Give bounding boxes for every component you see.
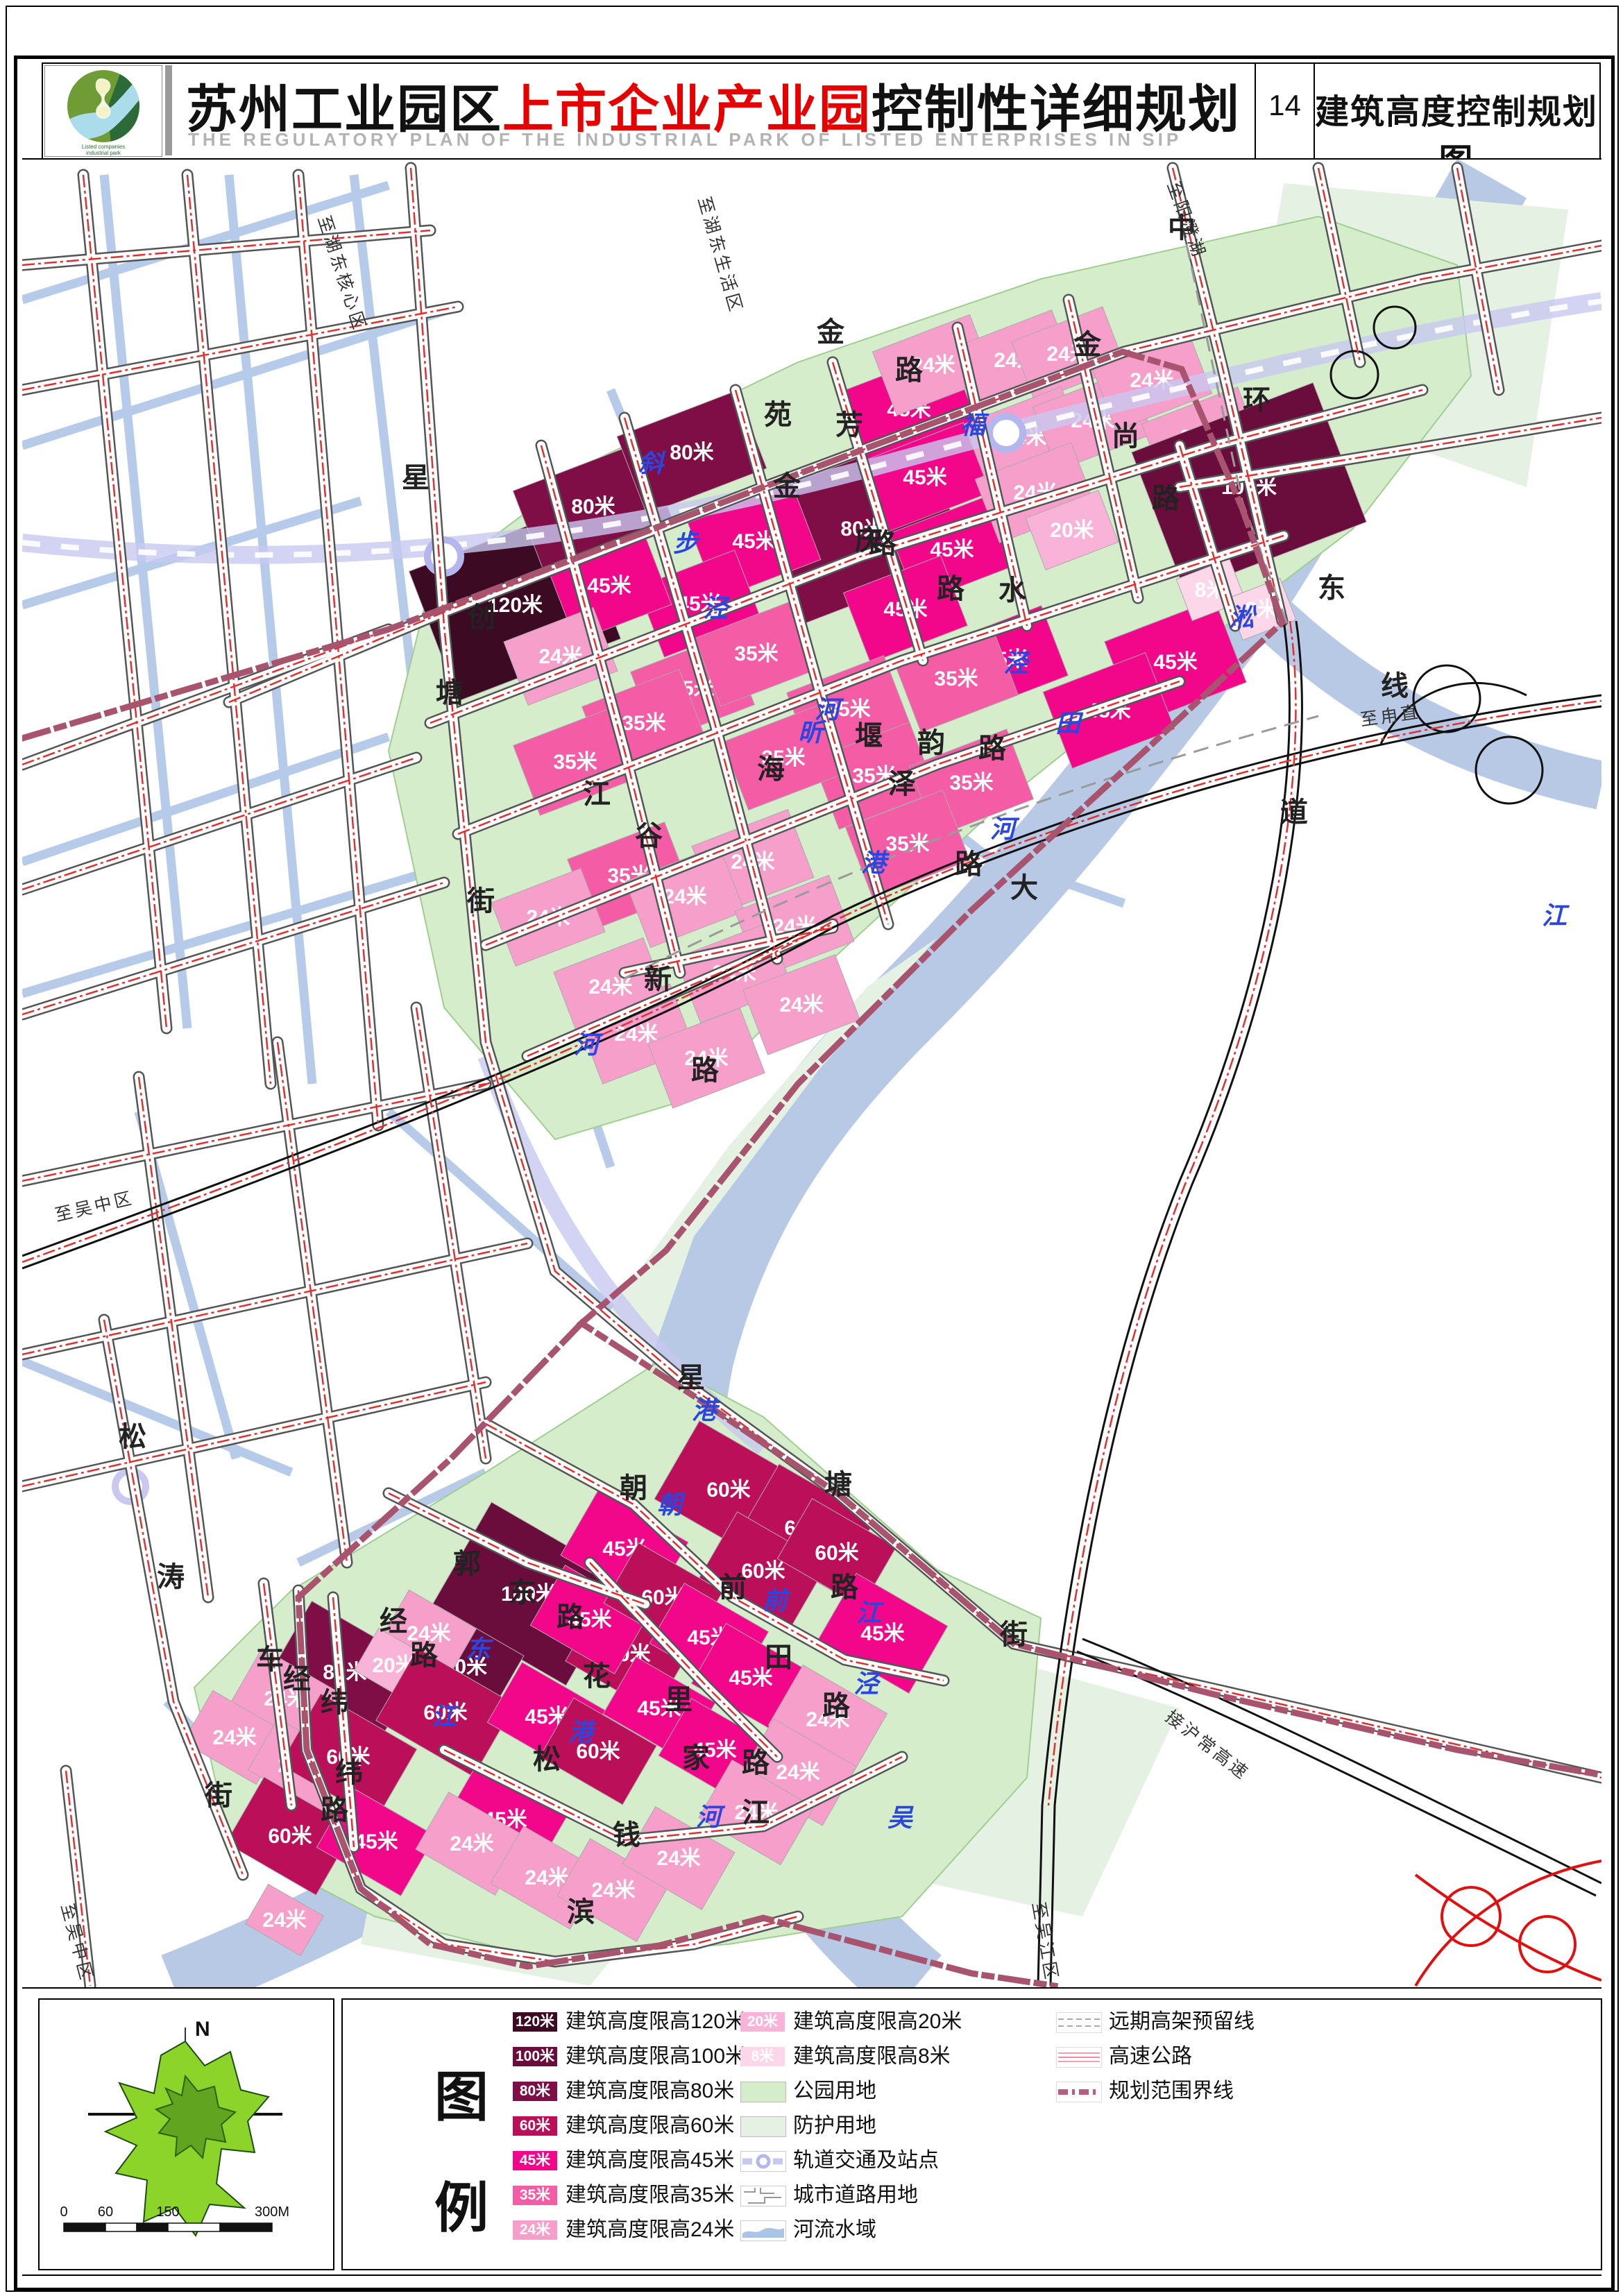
- road-name-char: 路: [955, 849, 983, 880]
- direction-label: 接沪常高速: [1162, 1707, 1253, 1784]
- road-name-char: 路: [822, 1691, 851, 1721]
- road-name-char: 经: [380, 1606, 407, 1637]
- legend-swatch: 100米: [513, 2047, 557, 2066]
- river-name-char: 步: [673, 529, 701, 557]
- legend-label: 防护用地: [793, 2116, 876, 2136]
- legend-item: 河流水域: [740, 2220, 1060, 2244]
- road-name-char: 尚: [1112, 421, 1139, 452]
- scalebar-tick: 150: [156, 2204, 179, 2220]
- legend-label: 远期高架预留线: [1109, 2012, 1255, 2032]
- legend-swatch: 24米: [513, 2220, 557, 2240]
- road-name-char: 路: [831, 1572, 859, 1603]
- legend-item: 8米建筑高度限高8米: [740, 2047, 1060, 2070]
- river-name-char: 泾: [703, 594, 731, 622]
- road-name-char: 星: [402, 463, 430, 493]
- legend-label: 建筑高度限高80米: [566, 2082, 734, 2101]
- road-name-char: 东: [1318, 573, 1345, 604]
- road-name-char: 路: [742, 1748, 770, 1778]
- road-name-char: 松: [533, 1744, 561, 1775]
- road-name-char: 庆: [855, 525, 883, 556]
- legend-label: 建筑高度限高100米: [566, 2047, 746, 2066]
- road-name-char: 星: [677, 1363, 705, 1393]
- direction-label: 至湖东生活区: [694, 194, 746, 316]
- legend-swatch: 20米: [740, 2012, 785, 2032]
- logo-caption-1: Listed companies: [82, 144, 125, 150]
- legend-label: 城市道路用地: [793, 2186, 918, 2205]
- legend-swatch: [740, 2082, 786, 2102]
- river-name-char: 朝: [657, 1490, 686, 1519]
- height-label: 24米: [776, 1761, 819, 1784]
- scalebar-tick: 60: [98, 2204, 113, 2220]
- road-name-char: 塘: [824, 1470, 852, 1500]
- legend-item: 高速公路: [1056, 2047, 1375, 2070]
- header-separator: [165, 65, 172, 155]
- legend-symbol-road: [740, 2186, 786, 2206]
- road-name-char: 朝: [620, 1473, 647, 1504]
- road-name-char: 谷: [635, 821, 663, 851]
- legend: 图 例 120米建筑高度限高120米100米建筑高度限高100米80米建筑高度限…: [341, 1998, 1602, 2270]
- logo-caption-2: industrial park: [86, 150, 121, 156]
- height-label: 35米: [734, 643, 778, 665]
- river-name-char: 昕: [798, 718, 827, 747]
- legend-item: 远期高架预留线: [1056, 2012, 1375, 2036]
- legend-item: 防护用地: [740, 2116, 1060, 2140]
- road-name-char: 路: [1152, 484, 1180, 514]
- road-name-char: 路: [410, 1640, 439, 1671]
- legend-label: 建筑高度限高8米: [793, 2047, 951, 2066]
- legend-symbol-water: [740, 2220, 786, 2241]
- height-label: 24米: [212, 1726, 256, 1749]
- legend-label: 高速公路: [1109, 2047, 1192, 2066]
- river-name-char: 港: [692, 1396, 720, 1425]
- road-name-char: 韵: [917, 728, 945, 758]
- road-name-char: 街: [204, 1780, 232, 1811]
- road-name-char: 路: [937, 574, 965, 604]
- river-name-char: 田: [1055, 709, 1084, 738]
- compass-box: N 060150300M: [38, 1998, 334, 2270]
- river-name-char: 江: [856, 1599, 884, 1627]
- scalebar-tick: 0: [60, 2204, 67, 2220]
- legend-symbol-expressway: [1056, 2047, 1102, 2068]
- road-name-char: 道: [1280, 797, 1308, 828]
- legend-item: 轨道交通及站点: [740, 2151, 1060, 2175]
- road-name-char: 街: [466, 886, 495, 917]
- height-label: 80米: [670, 441, 713, 464]
- legend-symbol-rail: [740, 2151, 786, 2172]
- logo-image: Listed companies industrial park: [45, 66, 162, 156]
- height-label: 60米: [815, 1542, 858, 1565]
- river-name-char: 泾: [853, 1669, 881, 1698]
- scalebar-tick: 300M: [255, 2204, 289, 2220]
- road-name-char: 江: [742, 1798, 770, 1828]
- height-label: 24米: [656, 1847, 700, 1870]
- river-name-char: 港: [568, 1718, 597, 1746]
- road-name-char: 松: [119, 1422, 146, 1452]
- road-name-char: 里: [665, 1685, 692, 1715]
- legend-symbol-boundary: [1056, 2082, 1102, 2102]
- bottom-rule: [22, 2274, 1601, 2276]
- legend-swatch: 80米: [513, 2082, 557, 2101]
- road-name-char: 芳: [835, 410, 863, 441]
- road-name-char: 钱: [613, 1820, 640, 1851]
- road-name-char: 家: [682, 1743, 710, 1774]
- height-label: 24米: [262, 1909, 306, 1932]
- road-name-char: 金: [772, 470, 801, 502]
- legend-item: 城市道路用地: [740, 2186, 1060, 2209]
- legend-swatch: [740, 2116, 786, 2137]
- road-name-char: 创: [468, 602, 495, 633]
- road-name-char: 塘: [436, 678, 464, 708]
- legend-title-char-2: 例: [430, 2165, 493, 2243]
- legend-label: 建筑高度限高120米: [566, 2012, 746, 2032]
- height-label: 60米: [741, 1560, 785, 1583]
- north-label: N: [195, 2018, 210, 2041]
- road-name-char: 金: [1073, 329, 1102, 360]
- road-name-char: 江: [583, 779, 611, 810]
- river-name-char: 江: [1542, 901, 1570, 930]
- legend-item: 公园用地: [740, 2082, 1060, 2105]
- height-label: 24米: [591, 1879, 635, 1902]
- river-name-char: 吴: [887, 1803, 914, 1832]
- height-label: 45米: [903, 466, 946, 489]
- road-name-char: 车: [256, 1644, 284, 1675]
- road-name-char: 堰: [855, 721, 883, 751]
- height-label: 35米: [949, 772, 993, 794]
- river-name-char: 福: [960, 411, 989, 439]
- legend-swatch: 45米: [513, 2151, 557, 2170]
- height-label: 24米: [663, 885, 706, 908]
- legend-title-char-1: 图: [430, 2054, 493, 2132]
- river-name-char: 江: [432, 1702, 459, 1730]
- river-name-char: 东: [466, 1635, 494, 1663]
- legend-label: 建筑高度限高45米: [566, 2151, 734, 2170]
- road-name-char: 前: [719, 1572, 747, 1603]
- height-label: 45米: [1153, 651, 1197, 674]
- legend-symbol-elevated: [1056, 2012, 1102, 2033]
- road-name-char: 经: [283, 1664, 311, 1694]
- river-name-char: 前: [763, 1586, 791, 1615]
- compass-rose: N 060150300M: [40, 2000, 333, 2269]
- river-name-char: 港: [861, 849, 890, 877]
- road-name-char: 街: [999, 1619, 1028, 1650]
- height-label: 80米: [571, 495, 615, 518]
- legend-label: 建筑高度限高24米: [566, 2220, 734, 2240]
- road-name-char: 大: [1010, 873, 1038, 903]
- road-name-char: 路: [321, 1795, 349, 1826]
- height-label: 35米: [553, 751, 597, 774]
- legend-swatch: 60米: [513, 2116, 557, 2136]
- river-name-char: 斜: [638, 449, 666, 477]
- river-name-char: 泾: [1003, 649, 1031, 677]
- logo: Listed companies industrial park: [44, 65, 162, 157]
- legend-swatch: 120米: [513, 2012, 557, 2032]
- red-interchange-icon: [1416, 1861, 1601, 1986]
- road-name-char: 新: [644, 964, 672, 995]
- page-subtitle-en: THE REGULATORY PLAN OF THE INDUSTRIAL PA…: [188, 129, 1182, 151]
- height-control-map: 120米80米80米80米45米45米45米45米45米45米45米45米45米…: [22, 160, 1601, 1987]
- road-name-char: 纬: [321, 1687, 348, 1718]
- legend-swatch: 8米: [740, 2047, 785, 2066]
- metro-station-icon: [989, 416, 1023, 450]
- scale-bar: 060150300M: [60, 2204, 289, 2231]
- legend-label: 河流水域: [793, 2220, 876, 2240]
- height-label: 24米: [779, 994, 823, 1017]
- legend-label: 轨道交通及站点: [793, 2151, 939, 2170]
- road-name-char: 东: [509, 1578, 536, 1608]
- height-label: 35米: [934, 667, 978, 690]
- height-label: 24米: [450, 1832, 493, 1855]
- legend-label: 规划范围界线: [1109, 2082, 1234, 2101]
- road-name-char: 涛: [157, 1562, 185, 1592]
- road-name-char: 路: [556, 1602, 585, 1633]
- height-label: 45米: [354, 1830, 398, 1853]
- height-label: 60米: [268, 1825, 312, 1848]
- road-name-char: 花: [583, 1661, 611, 1692]
- road-name-char: 郭: [453, 1549, 481, 1579]
- road-name-char: 水: [999, 575, 1027, 606]
- legend-label: 建筑高度限高20米: [793, 2012, 962, 2032]
- legend-item: 规划范围界线: [1056, 2082, 1375, 2105]
- height-label: 24米: [525, 1866, 568, 1889]
- height-label: 45米: [587, 575, 631, 597]
- road-name-char: 路: [978, 733, 1007, 764]
- road-name-char: 路: [895, 355, 924, 386]
- legend-item: 20米建筑高度限高20米: [740, 2012, 1060, 2036]
- road-name-char: 金: [816, 316, 845, 348]
- height-label: 24米: [588, 976, 632, 998]
- legend-label: 公园用地: [793, 2082, 876, 2101]
- road-name-char: 田: [765, 1642, 792, 1673]
- road-name-char: 路: [691, 1055, 720, 1086]
- road-name-char: 纬: [335, 1758, 363, 1788]
- map-canvas: 120米80米80米80米45米45米45米45米45米45米45米45米45米…: [22, 158, 1601, 1989]
- river-name-char: 淞: [1230, 603, 1257, 631]
- road-name-char: 线: [1381, 671, 1409, 701]
- height-label: 35米: [622, 712, 665, 735]
- height-label: 60米: [706, 1479, 750, 1502]
- legend-label: 建筑高度限高60米: [566, 2116, 734, 2136]
- road-name-char: 滨: [567, 1897, 595, 1928]
- road-name-char: 环: [1243, 385, 1271, 416]
- road-name-char: 海: [757, 754, 785, 785]
- road-name-char: 苑: [764, 400, 792, 430]
- road-name-char: 泽: [888, 769, 916, 799]
- sheet-number: 14: [1256, 89, 1314, 122]
- legend-label: 建筑高度限高35米: [566, 2186, 734, 2205]
- height-label: 20米: [1050, 519, 1094, 542]
- height-label: 35米: [885, 833, 929, 856]
- legend-swatch: 35米: [513, 2186, 557, 2205]
- direction-label: 至吴江区: [1028, 1900, 1062, 1983]
